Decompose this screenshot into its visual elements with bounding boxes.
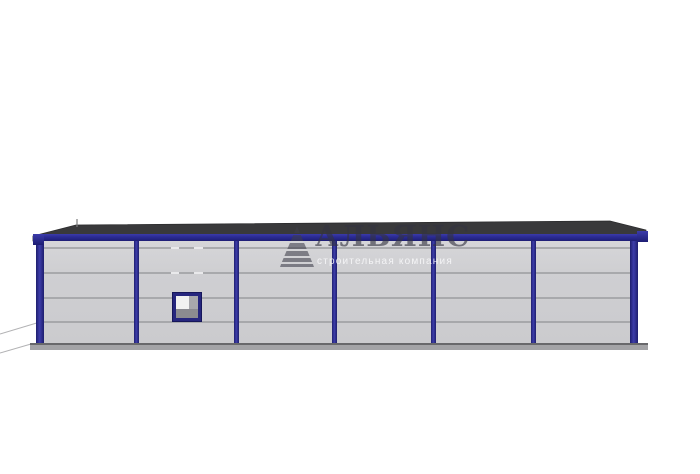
wall-panel-line	[40, 272, 634, 274]
small-window	[172, 292, 202, 322]
panel-joint-mark	[194, 247, 203, 249]
panel-joint-mark	[171, 272, 179, 274]
bay-divider-column	[531, 240, 536, 343]
window-glass	[176, 296, 198, 318]
wall-panel-line	[40, 321, 634, 323]
front-wall	[40, 240, 634, 343]
bay-divider-column	[332, 240, 337, 343]
foundation-base-strip	[30, 343, 648, 350]
corner-column-left	[36, 240, 44, 343]
bay-divider-column	[431, 240, 436, 343]
wall-panel-line	[40, 297, 634, 299]
sketch-guide-line-lower	[0, 344, 31, 353]
corner-column-right	[630, 240, 638, 343]
sketch-guide-line-upper	[0, 322, 40, 334]
window-interior-shade-bottom	[176, 309, 198, 318]
wall-panel-line	[40, 247, 634, 249]
bay-divider-column	[134, 240, 139, 343]
panel-joint-mark	[194, 272, 203, 274]
fascia-end-cap-right	[637, 231, 648, 242]
panel-joint-mark	[171, 247, 179, 249]
fascia-end-cap-left	[33, 234, 44, 245]
roof-fascia-trim	[33, 234, 648, 241]
building-render-canvas: АЛЬЯНС строительная компания	[0, 0, 700, 474]
bay-divider-column	[234, 240, 239, 343]
